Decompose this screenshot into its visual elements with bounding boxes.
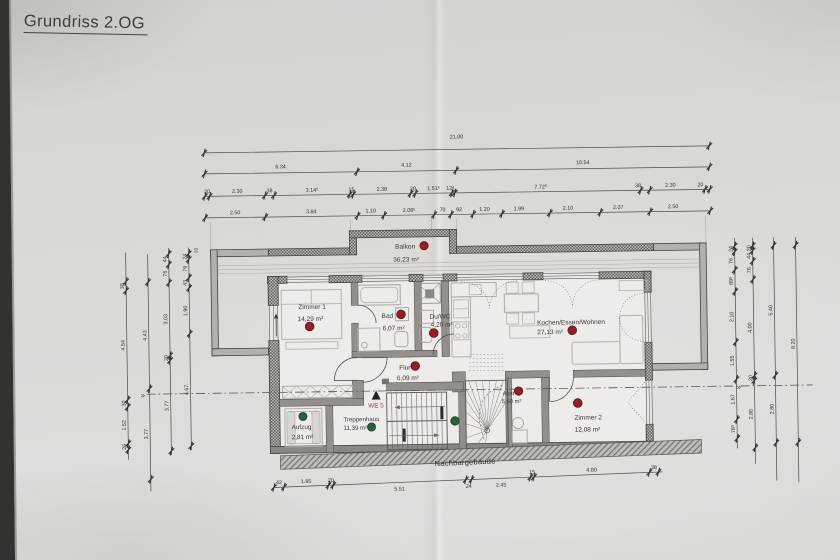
svg-text:2.38: 2.38 xyxy=(377,187,388,193)
svg-text:20: 20 xyxy=(328,478,334,484)
svg-text:10.54: 10.54 xyxy=(576,160,590,166)
svg-text:20: 20 xyxy=(746,245,752,251)
svg-text:24: 24 xyxy=(728,246,734,252)
svg-text:Treppenhaus: Treppenhaus xyxy=(343,416,379,423)
svg-text:1.85: 1.85 xyxy=(301,479,312,485)
svg-text:785: 785 xyxy=(731,425,737,433)
svg-text:Nachbargebäude: Nachbargebäude xyxy=(434,456,495,468)
svg-text:76: 76 xyxy=(729,258,735,264)
svg-text:1.10: 1.10 xyxy=(365,208,376,214)
svg-text:3.77: 3.77 xyxy=(164,401,170,412)
svg-text:5,60 m²: 5,60 m² xyxy=(502,399,522,405)
svg-text:Kochen/Essen/Wohnen: Kochen/Essen/Wohnen xyxy=(537,319,605,327)
svg-text:1.99: 1.99 xyxy=(514,206,525,212)
svg-text:24: 24 xyxy=(466,484,472,490)
svg-text:1.515: 1.515 xyxy=(427,186,440,192)
svg-text:3.84: 3.84 xyxy=(306,209,317,215)
svg-text:Aufzug: Aufzug xyxy=(292,424,312,431)
svg-text:Zimmer 2: Zimmer 2 xyxy=(574,414,602,421)
svg-text:2.80: 2.80 xyxy=(770,404,776,415)
svg-text:2.10: 2.10 xyxy=(729,312,735,323)
svg-text:76: 76 xyxy=(183,266,189,272)
svg-text:1.52: 1.52 xyxy=(122,420,128,431)
svg-text:27,13 m²: 27,13 m² xyxy=(537,329,564,336)
svg-text:30: 30 xyxy=(121,400,127,406)
svg-text:1.90: 1.90 xyxy=(183,306,189,317)
svg-text:WE 5: WE 5 xyxy=(368,402,384,409)
svg-text:6.34: 6.34 xyxy=(275,164,286,170)
svg-text:5.51: 5.51 xyxy=(394,487,405,493)
svg-text:4.80: 4.80 xyxy=(586,467,597,473)
svg-text:7.725: 7.725 xyxy=(534,184,547,190)
svg-text:2.30: 2.30 xyxy=(665,183,676,189)
svg-text:1.67: 1.67 xyxy=(730,394,736,405)
svg-text:11,39 m²: 11,39 m² xyxy=(344,425,368,432)
svg-text:Flur: Flur xyxy=(399,365,411,372)
svg-text:36,23 m²: 36,23 m² xyxy=(393,256,420,263)
svg-text:4.00: 4.00 xyxy=(747,322,753,333)
svg-text:3.145: 3.145 xyxy=(306,187,319,193)
svg-text:20: 20 xyxy=(748,375,754,381)
svg-text:20: 20 xyxy=(204,189,210,195)
svg-text:15: 15 xyxy=(529,470,535,476)
svg-text:43: 43 xyxy=(183,280,189,286)
svg-text:Balkon: Balkon xyxy=(395,243,416,250)
svg-text:Bad: Bad xyxy=(381,313,393,320)
svg-text:2.10: 2.10 xyxy=(563,206,574,212)
svg-text:Abst: Abst xyxy=(503,391,515,397)
svg-text:895: 895 xyxy=(729,277,735,285)
svg-text:44: 44 xyxy=(746,253,752,259)
svg-text:5.40: 5.40 xyxy=(768,305,774,316)
svg-text:70: 70 xyxy=(440,207,446,213)
svg-text:Du/WC: Du/WC xyxy=(429,313,450,320)
svg-text:2.085: 2.085 xyxy=(403,207,416,213)
svg-text:4,20 m²: 4,20 m² xyxy=(431,321,454,328)
svg-text:2,81 m²: 2,81 m² xyxy=(292,434,314,441)
svg-text:3.77: 3.77 xyxy=(144,429,150,440)
svg-text:38: 38 xyxy=(266,188,272,194)
svg-text:20: 20 xyxy=(164,355,170,361)
svg-text:20: 20 xyxy=(697,182,703,188)
svg-text:15: 15 xyxy=(348,187,354,193)
svg-text:»: » xyxy=(736,382,741,391)
svg-text:3.03: 3.03 xyxy=(163,314,169,325)
svg-text:2.50: 2.50 xyxy=(668,204,679,210)
svg-text:1.20: 1.20 xyxy=(479,207,490,213)
svg-text:38: 38 xyxy=(651,465,657,471)
svg-text:92: 92 xyxy=(456,207,462,213)
svg-text:4.12: 4.12 xyxy=(401,163,412,169)
svg-text:12,08 m²: 12,08 m² xyxy=(575,426,602,433)
svg-text:6,07 m²: 6,07 m² xyxy=(383,325,406,332)
svg-text:2.07: 2.07 xyxy=(613,205,624,211)
svg-text:»: » xyxy=(141,391,146,400)
svg-text:Zimmer 1: Zimmer 1 xyxy=(298,304,326,311)
svg-text:44: 44 xyxy=(162,256,168,262)
svg-text:8.20: 8.20 xyxy=(791,339,797,350)
svg-text:38: 38 xyxy=(635,183,641,189)
svg-text:76: 76 xyxy=(163,271,169,277)
svg-text:2.45: 2.45 xyxy=(496,483,507,489)
svg-text:2.50: 2.50 xyxy=(230,210,241,216)
svg-text:4.54: 4.54 xyxy=(121,340,127,351)
svg-text:20: 20 xyxy=(410,186,416,192)
svg-text:6,09 m²: 6,09 m² xyxy=(397,375,420,382)
svg-text:21.00: 21.00 xyxy=(450,134,464,140)
svg-text:76: 76 xyxy=(747,267,753,273)
svg-text:26: 26 xyxy=(122,444,128,450)
svg-text:2.30: 2.30 xyxy=(232,189,243,195)
svg-text:4.43: 4.43 xyxy=(142,330,148,341)
svg-text:42: 42 xyxy=(276,480,282,486)
svg-text:38: 38 xyxy=(120,283,126,289)
svg-text:24: 24 xyxy=(182,254,188,260)
svg-text:2.80: 2.80 xyxy=(749,409,755,420)
svg-text:20: 20 xyxy=(194,248,199,254)
svg-text:1.55: 1.55 xyxy=(730,355,736,366)
